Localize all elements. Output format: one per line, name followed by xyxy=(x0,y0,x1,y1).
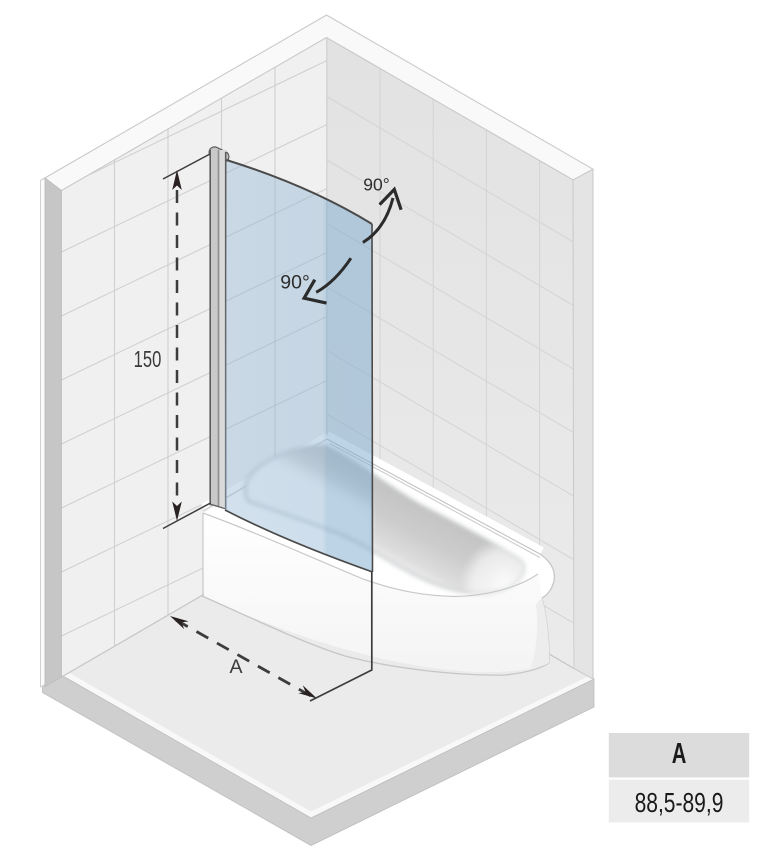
svg-text:150: 150 xyxy=(134,347,162,372)
svg-text:A: A xyxy=(229,656,242,678)
svg-text:90°: 90° xyxy=(363,175,389,195)
svg-text:90°: 90° xyxy=(280,272,310,294)
svg-text:A: A xyxy=(672,739,687,770)
svg-text:88,5-89,9: 88,5-89,9 xyxy=(635,788,724,818)
